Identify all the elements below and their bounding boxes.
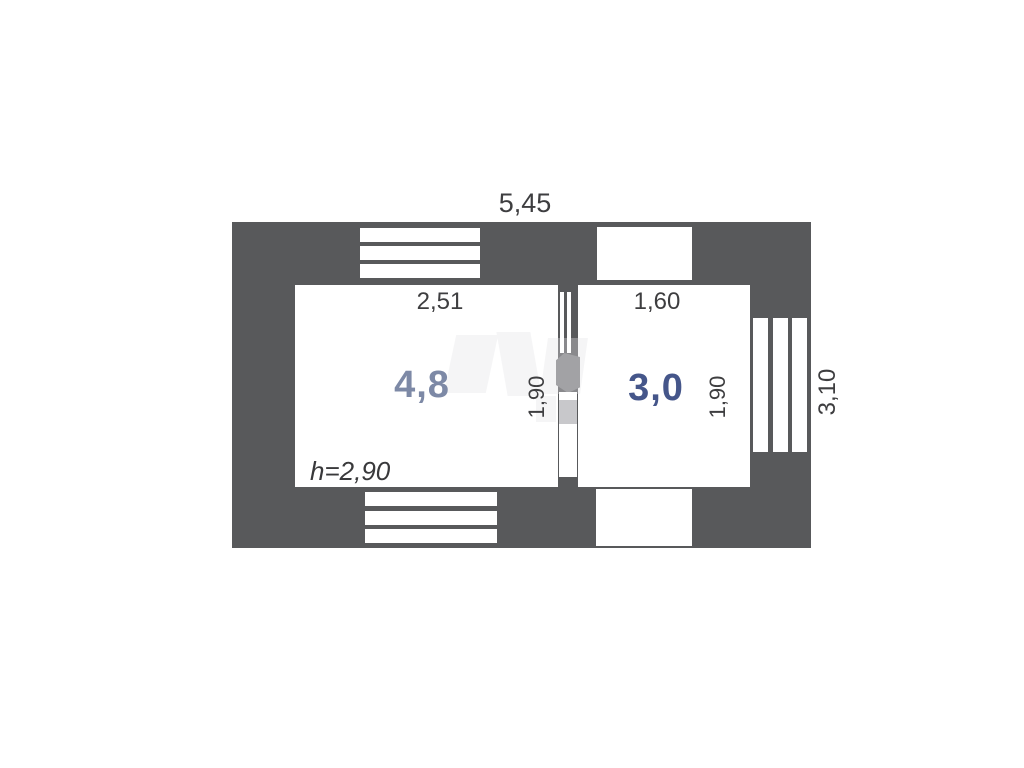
dim-room1-width: 2,51 <box>380 288 500 316</box>
window-pane <box>360 228 480 242</box>
dim-room1-depth: 1,90 <box>524 362 550 432</box>
floor-plan-page: 5,45 <box>0 0 1024 768</box>
door-frame-line <box>560 292 564 353</box>
watermark-shape <box>559 400 577 424</box>
window-top-left <box>360 228 480 278</box>
window-right <box>753 318 807 452</box>
door-frame-line <box>567 292 571 353</box>
room1-area-label: 4,8 <box>362 364 482 407</box>
window-pane <box>365 529 497 543</box>
window-bottom-left <box>365 492 497 543</box>
dim-room2-width: 1,60 <box>597 288 717 316</box>
window-pane <box>360 264 480 278</box>
window-pane <box>792 318 807 452</box>
window-pane <box>360 246 480 260</box>
dim-overall-depth: 3,10 <box>814 352 842 432</box>
window-pane <box>365 511 497 525</box>
door-leaf-icon <box>556 353 580 393</box>
window-pane <box>753 318 768 452</box>
room2-area-label: 3,0 <box>596 367 716 410</box>
dim-overall-width: 5,45 <box>465 188 585 219</box>
ceiling-height-label: h=2,90 <box>310 456 390 487</box>
window-pane <box>365 492 497 506</box>
window-pane <box>773 318 788 452</box>
doorway-bottom <box>596 489 692 546</box>
doorway-top <box>597 227 692 280</box>
